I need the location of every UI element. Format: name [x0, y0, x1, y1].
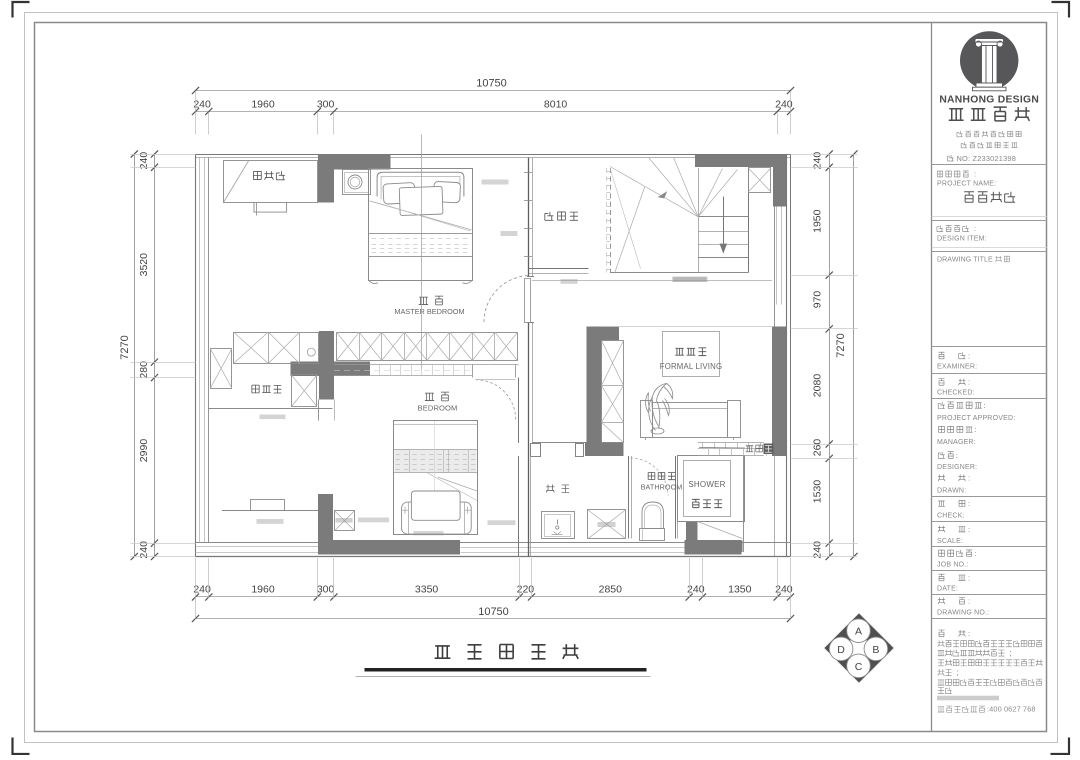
- svg-text:300: 300: [317, 99, 335, 111]
- svg-text:A: A: [855, 626, 862, 638]
- svg-text::: :: [974, 170, 976, 179]
- svg-text::: :: [968, 378, 970, 387]
- svg-text:DRAWN:: DRAWN:: [937, 488, 966, 495]
- svg-text::400 0627 768: :400 0627 768: [987, 705, 1036, 714]
- svg-text:FORMAL LIVING: FORMAL LIVING: [660, 362, 723, 371]
- svg-text::: :: [968, 474, 970, 483]
- svg-text:2080: 2080: [812, 374, 824, 398]
- svg-text:DRAWING NO.:: DRAWING NO.:: [937, 609, 989, 616]
- svg-text:C: C: [855, 661, 863, 673]
- svg-text:1350: 1350: [728, 584, 752, 596]
- svg-text:10750: 10750: [476, 78, 507, 90]
- svg-text:1960: 1960: [251, 99, 275, 111]
- svg-text:;: ;: [957, 668, 959, 677]
- svg-text:7270: 7270: [119, 335, 131, 359]
- svg-text:1950: 1950: [812, 209, 824, 233]
- svg-text:MANAGER:: MANAGER:: [937, 439, 976, 446]
- svg-text:PROJECT NAME:: PROJECT NAME:: [937, 181, 996, 188]
- svg-text:SCALE:: SCALE:: [937, 538, 963, 545]
- svg-text:JOB NO.:: JOB NO.:: [937, 562, 969, 569]
- svg-text:300: 300: [317, 584, 335, 596]
- svg-text::: :: [968, 573, 970, 582]
- svg-text::: :: [984, 401, 986, 410]
- svg-text::: :: [968, 499, 970, 508]
- svg-text:DRAWING TITLE: DRAWING TITLE: [937, 257, 993, 264]
- svg-text:EXAMINER:: EXAMINER:: [937, 364, 977, 371]
- svg-text:240: 240: [193, 99, 211, 111]
- svg-text:DATE:: DATE:: [937, 585, 958, 592]
- svg-text:1530: 1530: [812, 480, 824, 504]
- svg-text:BEDROOM: BEDROOM: [418, 404, 458, 413]
- svg-text:B: B: [872, 644, 879, 656]
- svg-text:260: 260: [812, 439, 824, 457]
- svg-text::: :: [968, 629, 970, 638]
- svg-text:MASTER BEDROOM: MASTER BEDROOM: [394, 307, 464, 316]
- svg-text:CHECKED:: CHECKED:: [937, 390, 975, 397]
- svg-text:CHECK:: CHECK:: [937, 512, 965, 519]
- svg-text::: :: [968, 525, 970, 534]
- svg-text:8010: 8010: [544, 99, 568, 111]
- svg-text::: :: [968, 351, 970, 360]
- svg-text::: :: [974, 224, 976, 233]
- svg-text:3520: 3520: [138, 253, 150, 277]
- svg-text:PROJECT APPROVED:: PROJECT APPROVED:: [937, 415, 1015, 422]
- svg-text:7270: 7270: [835, 333, 847, 357]
- svg-text:10750: 10750: [478, 606, 509, 618]
- svg-text:D: D: [837, 644, 845, 656]
- svg-text::: :: [974, 425, 976, 434]
- svg-text::: :: [956, 451, 958, 460]
- svg-text:DESIGNER:: DESIGNER:: [937, 464, 977, 471]
- svg-text::: :: [974, 549, 976, 558]
- svg-text:280: 280: [138, 361, 150, 379]
- svg-text:2990: 2990: [138, 439, 150, 463]
- svg-text:BATHROOM: BATHROOM: [641, 483, 683, 492]
- svg-text:DESIGN ITEM:: DESIGN ITEM:: [937, 236, 987, 243]
- svg-text:;: ;: [1010, 649, 1012, 658]
- svg-text:1960: 1960: [251, 584, 275, 596]
- svg-text:SHOWER: SHOWER: [688, 480, 725, 489]
- svg-text:2850: 2850: [599, 584, 623, 596]
- svg-text:970: 970: [812, 291, 824, 309]
- svg-text:NANHONG DESIGN: NANHONG DESIGN: [939, 95, 1039, 106]
- svg-text:3350: 3350: [415, 584, 439, 596]
- svg-text::: :: [968, 597, 970, 606]
- svg-text:NO: Z233021398: NO: Z233021398: [957, 154, 1017, 163]
